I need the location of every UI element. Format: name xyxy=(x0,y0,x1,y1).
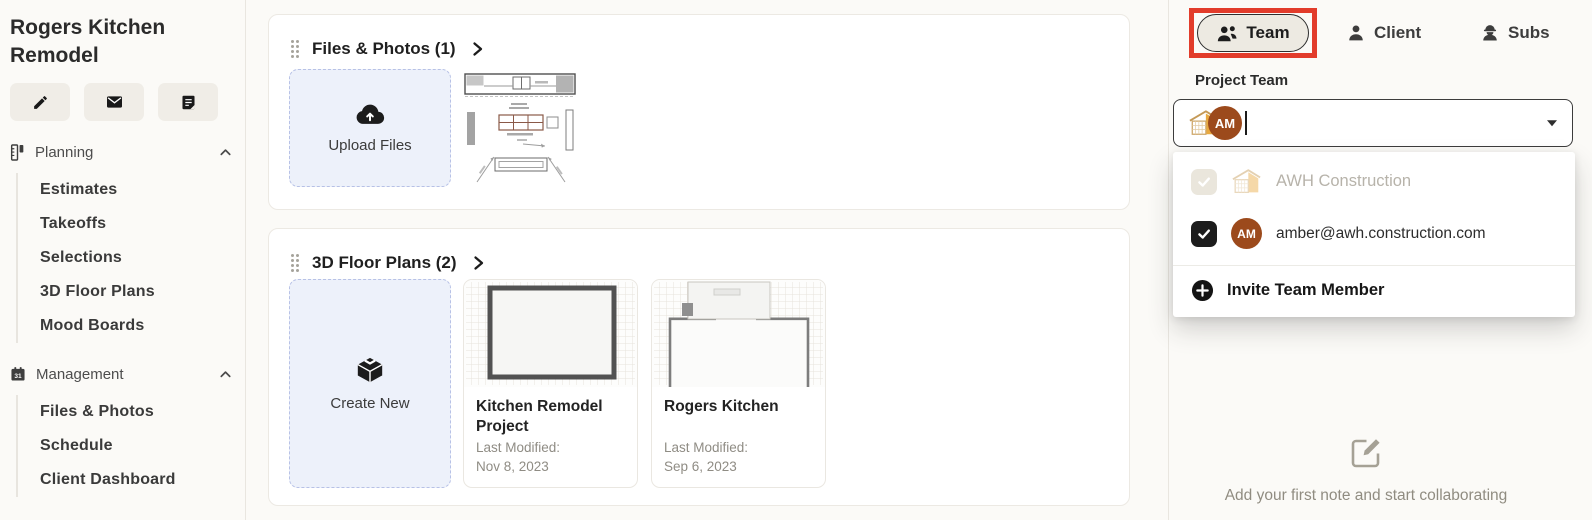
chevron-right-icon[interactable] xyxy=(471,41,484,57)
avatar: AM xyxy=(1208,106,1242,140)
chevron-up-icon[interactable] xyxy=(218,145,233,160)
checkbox-checked[interactable] xyxy=(1191,221,1217,247)
plan-title: Rogers Kitchen xyxy=(664,397,813,439)
awh-logo xyxy=(1231,167,1262,196)
floor-plans-card: 3D Floor Plans (2) Create New Kitchen Re… xyxy=(268,228,1130,506)
notes-empty-text: Add your first note and start collaborat… xyxy=(1173,487,1559,505)
project-title: Rogers Kitchen Remodel xyxy=(10,14,233,70)
sidebar-item-client-dashboard[interactable]: Client Dashboard xyxy=(18,463,233,497)
plan-modified-label: Last Modified: xyxy=(664,439,813,458)
sidebar-item-selections[interactable]: Selections xyxy=(18,241,233,275)
notes-button[interactable] xyxy=(158,83,218,121)
planning-items: Estimates Takeoffs Selections 3D Floor P… xyxy=(16,173,233,343)
sidebar-item-3d-floor-plans[interactable]: 3D Floor Plans xyxy=(18,275,233,309)
cloud-upload-icon xyxy=(354,102,386,127)
ruler-icon xyxy=(10,144,25,161)
chevron-right-icon[interactable] xyxy=(472,255,485,271)
tab-client-label: Client xyxy=(1374,23,1421,43)
sidebar-item-files-photos[interactable]: Files & Photos xyxy=(18,395,233,429)
section-label: Planning xyxy=(35,144,93,161)
plan-modified-date: Nov 8, 2023 xyxy=(476,458,625,477)
message-button[interactable] xyxy=(84,83,144,121)
subs-icon xyxy=(1481,24,1499,42)
tab-team-label: Team xyxy=(1246,23,1289,43)
caret-down-icon[interactable] xyxy=(1546,119,1558,127)
sidebar-item-takeoffs[interactable]: Takeoffs xyxy=(18,207,233,241)
dropdown-option-label: AWH Construction xyxy=(1276,172,1411,191)
invite-team-member-button[interactable]: Invite Team Member xyxy=(1173,266,1575,317)
team-icon xyxy=(1216,24,1238,43)
dropdown-option-amber[interactable]: AM amber@awh.construction.com xyxy=(1173,207,1575,260)
section-label: Management xyxy=(36,366,124,383)
plan-modified-date: Sep 6, 2023 xyxy=(664,458,813,477)
files-photos-card-title: Files & Photos (1) xyxy=(312,39,456,59)
drag-handle-icon[interactable] xyxy=(291,40,299,58)
invite-team-member-label: Invite Team Member xyxy=(1227,281,1384,300)
team-member-dropdown: AWH Construction AM amber@awh.constructi… xyxy=(1173,152,1575,317)
tab-subs-label: Subs xyxy=(1508,23,1550,43)
sidebar-section-management[interactable]: 31 Management xyxy=(10,361,233,387)
sidebar-section-planning[interactable]: Planning xyxy=(10,139,233,165)
tab-subs[interactable]: Subs xyxy=(1481,14,1550,52)
note-edit-icon[interactable] xyxy=(1348,434,1384,470)
file-thumbnail-kitchen-plan[interactable] xyxy=(461,65,579,191)
project-action-buttons xyxy=(10,83,233,121)
client-icon xyxy=(1347,24,1365,42)
plan-title: Kitchen Remodel Project xyxy=(476,397,625,439)
management-items: Files & Photos Schedule Client Dashboard xyxy=(16,395,233,497)
checkbox-checked-disabled xyxy=(1191,169,1217,195)
dropdown-option-awh-construction: AWH Construction xyxy=(1173,156,1575,207)
floor-plan-card-rogers-kitchen[interactable]: Rogers Kitchen Last Modified: Sep 6, 202… xyxy=(651,279,826,488)
floor-plans-card-title: 3D Floor Plans (2) xyxy=(312,253,457,273)
floor-plan-card-kitchen-remodel-project[interactable]: Kitchen Remodel Project Last Modified: N… xyxy=(463,279,638,488)
drag-handle-icon[interactable] xyxy=(291,254,299,272)
notes-empty-state: Add your first note and start collaborat… xyxy=(1173,434,1559,505)
svg-text:31: 31 xyxy=(14,373,22,380)
notepad-icon xyxy=(180,94,197,111)
text-cursor xyxy=(1245,111,1247,135)
sidebar-item-schedule[interactable]: Schedule xyxy=(18,429,233,463)
sidebar-item-mood-boards[interactable]: Mood Boards xyxy=(18,309,233,343)
dropdown-option-label: amber@awh.construction.com xyxy=(1276,225,1486,243)
floor-plan-thumbnail xyxy=(464,280,637,387)
chevron-up-icon[interactable] xyxy=(218,367,233,382)
plus-circle-icon xyxy=(1191,279,1214,302)
create-new-plan-tile[interactable]: Create New xyxy=(289,279,451,488)
cube-icon xyxy=(355,355,385,385)
pencil-icon xyxy=(32,94,49,111)
team-member-input[interactable]: AM xyxy=(1173,99,1573,147)
envelope-icon xyxy=(105,93,124,111)
upload-files-label: Upload Files xyxy=(328,137,411,154)
upload-files-tile[interactable]: Upload Files xyxy=(289,69,451,187)
sidebar-item-estimates[interactable]: Estimates xyxy=(18,173,233,207)
edit-project-button[interactable] xyxy=(10,83,70,121)
files-photos-card: Files & Photos (1) Upload Files xyxy=(268,14,1130,210)
project-sidebar: Rogers Kitchen Remodel Planning Estim xyxy=(0,0,246,520)
tab-client[interactable]: Client xyxy=(1347,14,1421,52)
tab-team[interactable]: Team xyxy=(1197,14,1309,52)
plan-modified-label: Last Modified: xyxy=(476,439,625,458)
collaboration-panel: Team Client Subs Project Team AM xyxy=(1168,0,1592,520)
floor-plan-thumbnail xyxy=(652,280,825,387)
avatar: AM xyxy=(1231,218,1262,249)
create-new-label: Create New xyxy=(330,395,409,412)
project-team-label: Project Team xyxy=(1195,72,1288,89)
calendar-icon: 31 xyxy=(10,366,26,382)
